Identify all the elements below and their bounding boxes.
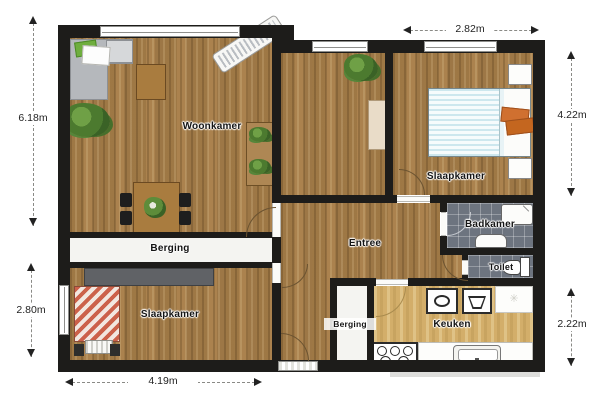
single-bed-mattress [74,286,120,342]
double-bed [428,88,531,157]
dim-arrow [567,51,575,59]
wardrobe [84,268,214,286]
bed-post [74,344,84,356]
dim-bottom-value: 4.19m [128,375,198,388]
wall-woonkamer-hall [272,38,281,203]
wall-badkamer-left-a [440,203,447,212]
dining-chair [120,211,132,225]
wall-right [533,40,545,372]
bed-cushion-orange [505,117,535,135]
door-keuken [376,279,408,285]
washer-drum-icon [434,295,450,307]
dim-arrow [29,16,37,24]
dim-arrow [27,349,35,357]
bed-post [110,344,120,356]
label-badkamer: Badkamer [450,219,530,231]
kitchen-cabinet: ✳ [495,286,533,313]
dim-arrow [403,26,411,34]
dining-chair [179,193,191,207]
plant-woonkamer [64,103,110,137]
shower-head-line [523,205,529,211]
washing-machine-icon [426,288,458,314]
window-woonkamer [100,26,240,37]
single-bed-pillow [85,340,113,354]
bed-mattress [429,89,499,156]
window-line [64,287,65,333]
window-slaapkamer-top [424,41,497,52]
label-woonkamer: Woonkamer [162,121,262,133]
floor-plan: ✳ [0,0,600,400]
label-berging-main: Berging [120,243,220,255]
wall-badkamer-toilet [440,248,533,255]
nightstand [508,158,532,179]
scan-artifact [390,372,540,377]
dim-arrow [567,288,575,296]
burner-icon [390,346,400,356]
window-slaapkamer-bottom [59,285,69,335]
burner-icon [403,346,413,356]
label-slaapkamer-bottom: Slaapkamer [120,309,220,321]
sideboard-plant [249,159,271,174]
dim-arrow [65,378,73,386]
wall-entree-top-right [430,195,533,203]
table-centerpiece-plant [144,197,166,218]
tub-symbol-inner [470,298,484,307]
dim-left-lower-value: 2.80m [8,304,54,317]
dim-line-right-upper [571,53,572,196]
door-slaapkamer-bottom [272,263,281,283]
window-line [314,47,366,48]
dim-arrow [254,378,262,386]
window-line [102,32,238,33]
sofa-pillow-white [81,45,110,66]
bathroom-sink [475,234,507,248]
window-line [426,47,495,48]
dim-right-upper-value: 4.22m [549,109,595,122]
hall-cabinet [368,100,386,150]
tub-symbol-outer [468,296,486,309]
dining-chair [120,193,132,207]
door-badkamer [441,212,446,236]
single-bed [72,286,122,356]
wall-keuken-top-left [330,278,376,286]
label-toilet: Toilet [471,261,531,273]
dim-left-upper-value: 6.18m [10,112,56,125]
plant-hall [344,54,378,81]
dim-right-lower-value: 2.22m [549,318,595,331]
label-slaapkamer-top: Slaapkamer [406,171,506,183]
label-berging-small: Berging [324,318,376,330]
wall-entree-left-mid [272,237,281,263]
nightstand [508,64,532,85]
wall-entree-top-left [281,195,397,203]
wall-hall-slaapkamer [385,53,393,195]
burner-icon [377,346,387,356]
dim-arrow [531,26,539,34]
wall-berging-bottom [70,262,281,268]
dim-arrow [567,188,575,196]
dim-arrow [29,218,37,226]
dim-arrow [567,358,575,366]
door-slaapkamer-top [397,196,430,202]
front-door-threshold [278,361,318,371]
wall-entree-left-low [272,283,281,360]
label-entree: Entree [325,238,405,250]
dining-chair [179,211,191,225]
dim-arrow [27,263,35,271]
wall-keuken-top-right [408,278,533,286]
coffee-table [136,64,166,100]
laundry-tub-icon [462,288,492,314]
label-keuken: Keuken [412,319,492,331]
dim-top-value: 2.82m [446,23,494,36]
window-hall [312,41,368,52]
